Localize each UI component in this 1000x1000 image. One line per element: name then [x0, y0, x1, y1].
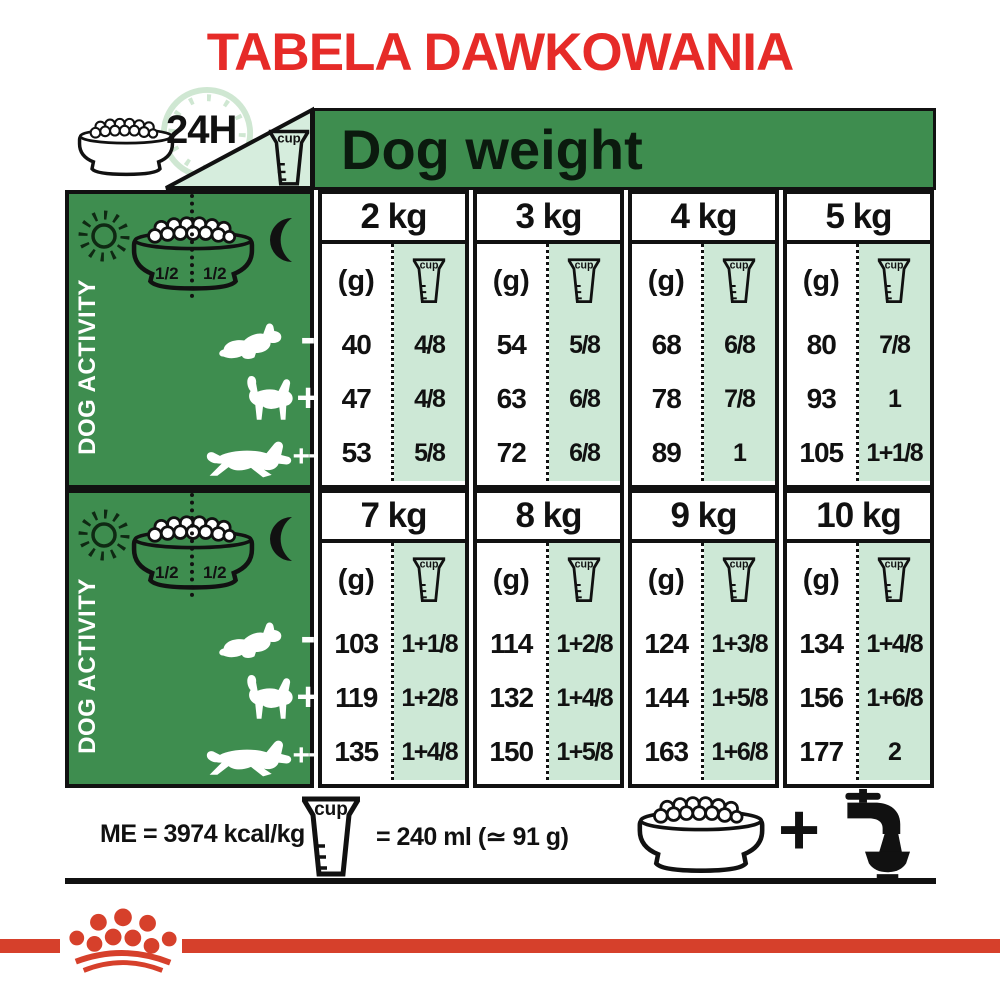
grams-value: 105 — [787, 426, 856, 480]
cup-value: 6/8 — [704, 318, 776, 372]
half-portion-label: 1/2 — [155, 264, 179, 284]
grams-value: 156 — [787, 671, 856, 725]
dog-activity-label: DOG ACTIVITY — [71, 256, 105, 478]
feeding-guide-page: TABELA DAWKOWANIA 24H Dog weight 1/2 1/2… — [0, 0, 1000, 1000]
weight-header: 9 kg — [632, 493, 775, 543]
weight-header: 5 kg — [787, 194, 930, 244]
grams-label: (g) — [632, 543, 701, 617]
dog-weight-header: Dog weight — [312, 108, 936, 190]
plus-sign: + — [778, 794, 820, 866]
grams-label: (g) — [632, 244, 701, 318]
grams-value: 177 — [787, 725, 856, 779]
weight-column-8kg: 8 kg (g) 114 132 150 1+2/8 1+4/8 1+5/8 — [473, 489, 624, 788]
cup-value: 1+4/8 — [394, 725, 466, 779]
grams-value: 114 — [477, 617, 546, 671]
cup-value: 1+6/8 — [859, 671, 931, 725]
grams-value: 150 — [477, 725, 546, 779]
bowl-divider-dotted-line — [190, 493, 194, 597]
cup-value: 1+2/8 — [549, 617, 621, 671]
cup-value: 5/8 — [394, 426, 466, 480]
grams-value: 103 — [322, 617, 391, 671]
grams-label: (g) — [787, 543, 856, 617]
grams-label: (g) — [477, 543, 546, 617]
grams-value: 47 — [322, 372, 391, 426]
cup-volume-text: = 240 ml (≃ 91 g) — [376, 822, 568, 852]
dog-activity-panel: 1/2 1/2 DOG ACTIVITY - + ++ — [65, 190, 314, 489]
grams-value: 135 — [322, 725, 391, 779]
grams-value: 132 — [477, 671, 546, 725]
cup-value: 1+4/8 — [549, 671, 621, 725]
grams-value: 89 — [632, 426, 701, 480]
measuring-cup-icon — [296, 794, 366, 880]
grams-value: 163 — [632, 725, 701, 779]
half-portion-label: 1/2 — [155, 563, 179, 583]
measuring-cup-icon — [875, 556, 913, 604]
cup-value: 1 — [704, 426, 776, 480]
grams-label: (g) — [477, 244, 546, 318]
grams-label: (g) — [322, 244, 391, 318]
grams-value: 78 — [632, 372, 701, 426]
cup-value: 5/8 — [549, 318, 621, 372]
weight-header: 2 kg — [322, 194, 465, 244]
grams-value: 54 — [477, 318, 546, 372]
grams-value: 144 — [632, 671, 701, 725]
weight-column-2kg: 2 kg (g) 40 47 53 4/8 4/8 5/8 — [318, 190, 469, 489]
weight-column-7kg: 7 kg (g) 103 119 135 1+1/8 1+2/8 1+4/8 — [318, 489, 469, 788]
divider-line — [65, 878, 936, 884]
moon-icon — [265, 515, 305, 563]
cup-value: 1+5/8 — [549, 725, 621, 779]
cup-value: 1+6/8 — [704, 725, 776, 779]
grams-value: 80 — [787, 318, 856, 372]
grams-value: 63 — [477, 372, 546, 426]
cup-value: 1+1/8 — [394, 617, 466, 671]
grams-label: (g) — [322, 543, 391, 617]
weight-column-5kg: 5 kg (g) 80 93 105 7/8 1 1+1/8 — [783, 190, 934, 489]
weight-column-3kg: 3 kg (g) 54 63 72 5/8 6/8 6/8 — [473, 190, 624, 489]
measuring-cup-icon — [266, 128, 312, 188]
measuring-cup-icon — [410, 556, 448, 604]
brand-line-left — [0, 939, 60, 953]
metabolizable-energy-text: ME = 3974 kcal/kg — [100, 820, 305, 849]
weight-column-10kg: 10 kg (g) 134 156 177 1+4/8 1+6/8 2 — [783, 489, 934, 788]
measuring-cup-icon — [410, 257, 448, 305]
cup-value: 6/8 — [549, 426, 621, 480]
cup-value: 7/8 — [704, 372, 776, 426]
grams-value: 72 — [477, 426, 546, 480]
cup-value: 4/8 — [394, 372, 466, 426]
grams-label: (g) — [787, 244, 856, 318]
weight-header: 7 kg — [322, 493, 465, 543]
dog-weight-label: Dog weight — [341, 117, 643, 182]
page-title: TABELA DAWKOWANIA — [207, 22, 794, 83]
cup-value: 1+1/8 — [859, 426, 931, 480]
grams-value: 124 — [632, 617, 701, 671]
grams-value: 134 — [787, 617, 856, 671]
cup-value: 2 — [859, 725, 931, 779]
section-large-weights: 1/2 1/2 DOG ACTIVITY - + ++ 7 kg (g) 103… — [65, 489, 936, 788]
weight-column-4kg: 4 kg (g) 68 78 89 6/8 7/8 1 — [628, 190, 779, 489]
measuring-cup-icon — [875, 257, 913, 305]
grams-value: 93 — [787, 372, 856, 426]
measuring-cup-icon — [720, 257, 758, 305]
section-small-weights: 1/2 1/2 DOG ACTIVITY - + ++ 2 kg (g) 40 … — [65, 190, 936, 489]
measuring-cup-icon — [565, 556, 603, 604]
grams-value: 68 — [632, 318, 701, 372]
water-tap-icon — [818, 788, 912, 880]
grams-value: 40 — [322, 318, 391, 372]
weight-header: 10 kg — [787, 493, 930, 543]
measuring-cup-icon — [565, 257, 603, 305]
dog-activity-label: DOG ACTIVITY — [71, 555, 105, 777]
weight-header: 4 kg — [632, 194, 775, 244]
measuring-cup-icon — [720, 556, 758, 604]
royal-canin-crown-logo — [64, 902, 182, 974]
cup-value: 1+4/8 — [859, 617, 931, 671]
cup-value: 1+5/8 — [704, 671, 776, 725]
weight-header: 8 kg — [477, 493, 620, 543]
low-activity-dog-icon — [215, 320, 291, 364]
moon-icon — [265, 216, 305, 264]
cup-value: 1 — [859, 372, 931, 426]
bowl-divider-dotted-line — [190, 194, 194, 298]
brand-line-right — [182, 939, 1000, 953]
dog-activity-panel: 1/2 1/2 DOG ACTIVITY - + ++ — [65, 489, 314, 788]
weight-header: 3 kg — [477, 194, 620, 244]
cup-value: 6/8 — [549, 372, 621, 426]
weight-column-9kg: 9 kg (g) 124 144 163 1+3/8 1+5/8 1+6/8 — [628, 489, 779, 788]
half-portion-label: 1/2 — [203, 264, 227, 284]
high-activity-dog-icon — [199, 430, 303, 480]
cup-value: 7/8 — [859, 318, 931, 372]
food-bowl-icon — [626, 794, 776, 878]
cup-value: 1+2/8 — [394, 671, 466, 725]
low-activity-dog-icon — [215, 619, 291, 663]
half-portion-label: 1/2 — [203, 563, 227, 583]
high-activity-dog-icon — [199, 729, 303, 779]
cup-value: 4/8 — [394, 318, 466, 372]
cup-value: 1+3/8 — [704, 617, 776, 671]
grams-value: 119 — [322, 671, 391, 725]
grams-value: 53 — [322, 426, 391, 480]
